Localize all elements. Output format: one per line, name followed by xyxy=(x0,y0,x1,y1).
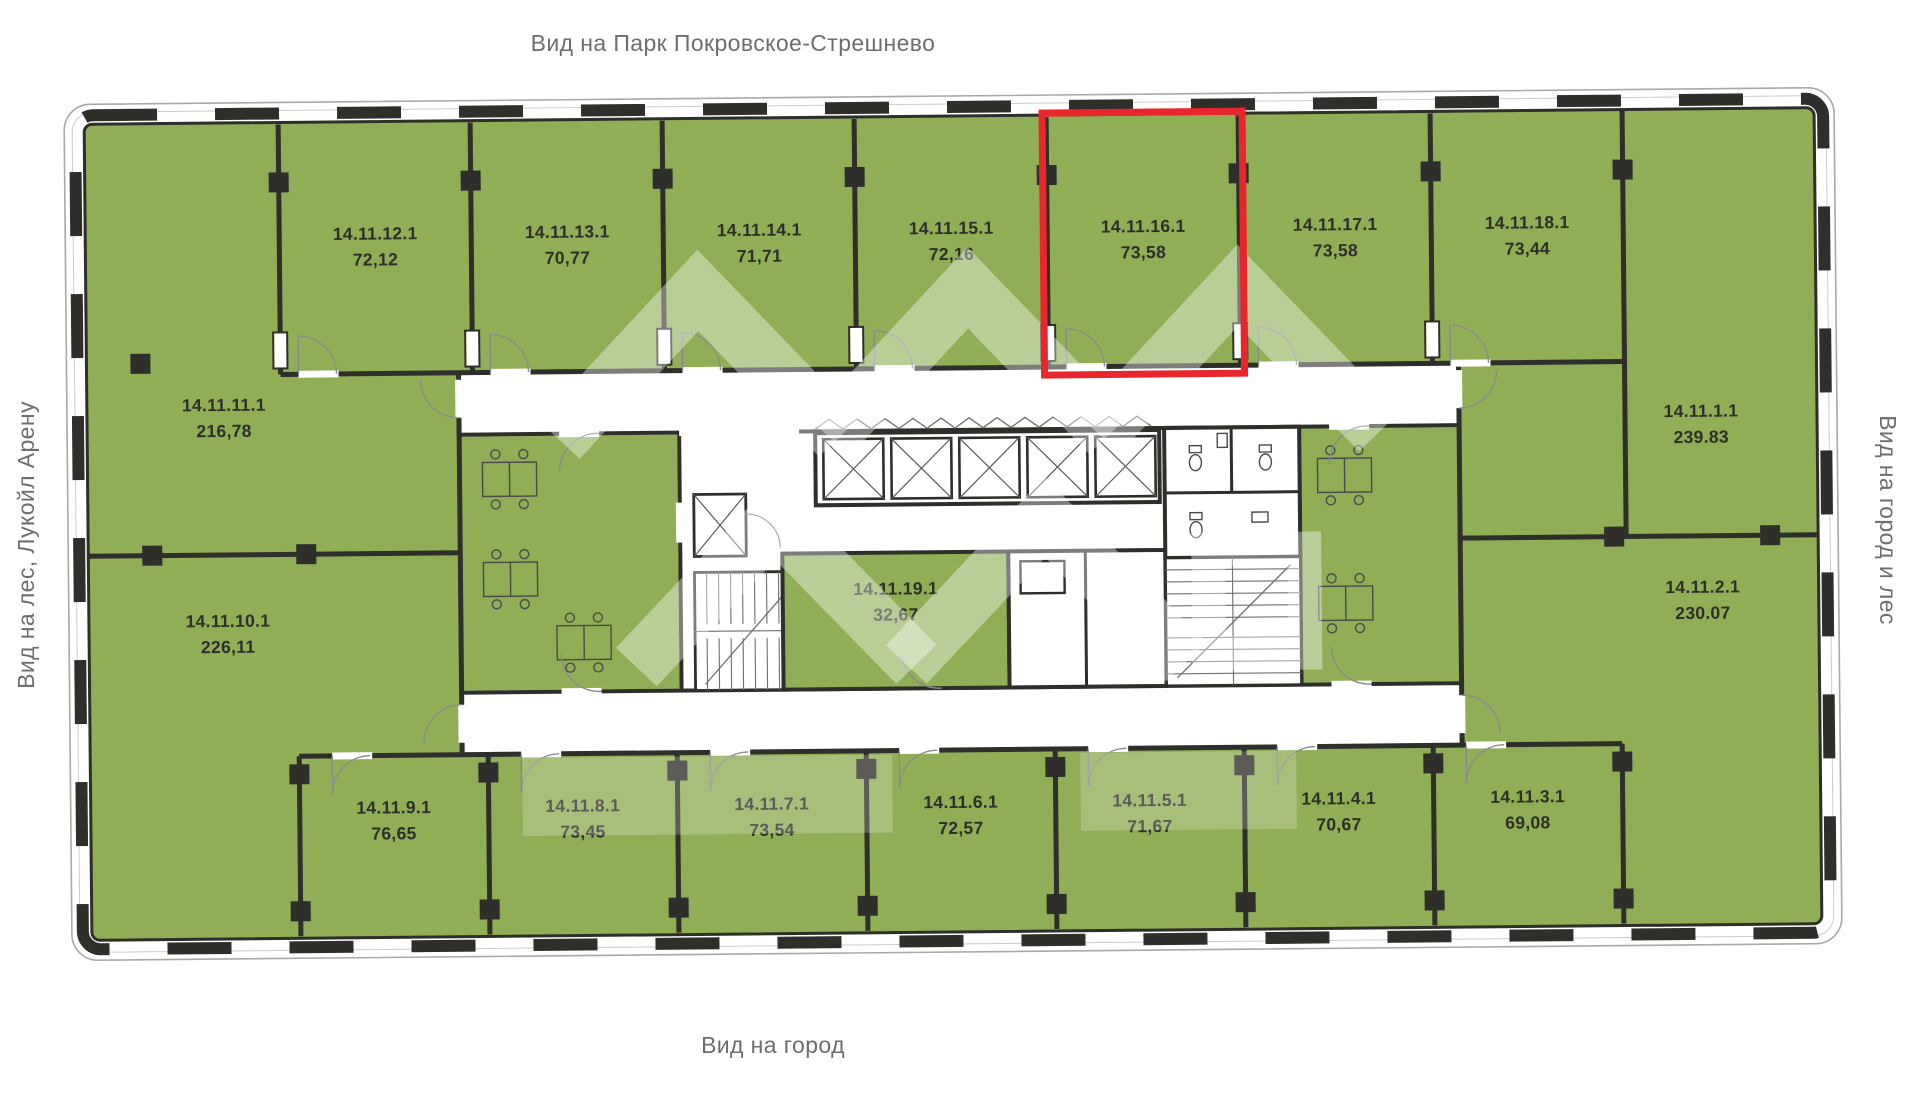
unit-id-label: 14.11.10.1 xyxy=(185,611,270,632)
unit-id-label: 14.11.7.1 xyxy=(734,793,809,814)
view-caption-bottom: Вид на город xyxy=(701,1032,845,1058)
unit-area-label: 230.07 xyxy=(1675,603,1731,624)
unit-area-label: 226,11 xyxy=(201,637,256,658)
unit-area-label: 76,65 xyxy=(371,823,416,843)
view-caption-right: Вид на город и лес xyxy=(1875,415,1901,625)
unit-id-label: 14.11.17.1 xyxy=(1293,214,1378,235)
unit-hit-area[interactable] xyxy=(1241,115,1429,362)
unit-area-label: 73,58 xyxy=(1313,240,1358,260)
unit-hit-area[interactable] xyxy=(1049,117,1237,364)
unit-hit-area[interactable] xyxy=(86,124,280,554)
unit-area-label: 216,78 xyxy=(196,421,252,442)
unit-hit-area[interactable] xyxy=(302,758,487,934)
unit-area-label: 73,44 xyxy=(1505,238,1550,258)
unit-hit-area[interactable] xyxy=(857,119,1045,366)
view-caption-top: Вид на Парк Покровское-Стрешнево xyxy=(531,30,936,56)
unit-14-11-19-1[interactable]: 14.11.19.1 32,67 xyxy=(784,553,1007,687)
unit-area-label: 72,57 xyxy=(938,818,983,838)
unit-14-11-8-1[interactable]: 14.11.8.1 73,45 xyxy=(491,756,676,932)
unit-id-label: 14.11.14.1 xyxy=(717,219,802,240)
unit-14-11-4-1[interactable]: 14.11.4.1 70,67 xyxy=(1247,748,1432,924)
wc-block xyxy=(1164,427,1300,558)
unit-id-label: 14.11.8.1 xyxy=(545,795,620,816)
unit-14-11-14-1[interactable]: 14.11.14.1 71,71 xyxy=(665,121,853,368)
unit-area-label: 70,77 xyxy=(545,247,590,267)
unit-id-label: 14.11.5.1 xyxy=(1112,790,1187,811)
unit-id-label: 14.11.16.1 xyxy=(1101,216,1186,237)
unit-id-label: 14.11.3.1 xyxy=(1490,786,1565,807)
unit-area-label: 239.83 xyxy=(1673,427,1729,448)
unit-area-label: 73,45 xyxy=(560,821,605,841)
unit-hit-area[interactable] xyxy=(1625,110,1817,534)
unit-14-11-3-1[interactable]: 14.11.3.1 69,08 xyxy=(1436,747,1621,923)
unit-14-11-7-1[interactable]: 14.11.7.1 73,54 xyxy=(680,754,865,930)
unit-id-label: 14.11.15.1 xyxy=(909,218,994,239)
unit-id-label: 14.11.18.1 xyxy=(1485,212,1570,233)
unit-hit-area[interactable] xyxy=(491,756,676,932)
unit-area-label: 70,67 xyxy=(1316,814,1361,834)
unit-14-11-18-1[interactable]: 14.11.18.1 73,44 xyxy=(1433,114,1621,361)
unit-14-11-5-1[interactable]: 14.11.5.1 71,67 xyxy=(1058,750,1243,926)
unit-id-label: 14.11.2.1 xyxy=(1665,576,1740,597)
unit-area-label: 73,58 xyxy=(1121,242,1166,262)
unit-14-11-10-1[interactable]: 14.11.10.1 226,11 xyxy=(90,557,284,937)
floorplan-page: Вид на Парк Покровское-Стрешнево Вид на … xyxy=(0,0,1920,1101)
unit-hit-area[interactable] xyxy=(665,121,853,368)
unit-area-label: 72,12 xyxy=(353,249,398,269)
unit-area-label: 32,67 xyxy=(873,604,918,624)
unit-id-label: 14.11.11.1 xyxy=(182,395,266,416)
stairwell-right xyxy=(1165,557,1301,686)
unit-hit-area[interactable] xyxy=(1247,748,1432,924)
unit-id-label: 14.11.4.1 xyxy=(1301,788,1376,809)
unit-14-11-9-1[interactable]: 14.11.9.1 76,65 xyxy=(302,758,487,934)
unit-area-label: 72,16 xyxy=(929,244,974,264)
service-elevator xyxy=(694,494,747,556)
unit-14-11-1-1[interactable]: 14.11.1.1 239.83 xyxy=(1625,110,1817,534)
unit-hit-area[interactable] xyxy=(1058,750,1243,926)
view-caption-left: Вид на лес, Лукойл Арену xyxy=(13,401,39,689)
unit-id-label: 14.11.9.1 xyxy=(356,797,431,818)
unit-14-11-15-1[interactable]: 14.11.15.1 72,16 xyxy=(857,119,1045,366)
unit-hit-area[interactable] xyxy=(281,125,469,372)
unit-14-11-6-1[interactable]: 14.11.6.1 72,57 xyxy=(869,752,1054,928)
unit-14-11-2-1[interactable]: 14.11.2.1 230.07 xyxy=(1629,538,1821,923)
unit-hit-area[interactable] xyxy=(680,754,865,930)
unit-hit-area[interactable] xyxy=(1433,114,1621,361)
unit-id-label: 14.11.19.1 xyxy=(853,578,938,599)
unit-14-11-13-1[interactable]: 14.11.13.1 70,77 xyxy=(473,123,661,370)
unit-area-label: 71,67 xyxy=(1127,816,1172,836)
unit-hit-area[interactable] xyxy=(869,752,1054,928)
unit-id-label: 14.11.13.1 xyxy=(525,221,610,242)
unit-14-11-11-1[interactable]: 14.11.11.1 216,78 xyxy=(86,124,280,554)
unit-area-label: 69,08 xyxy=(1505,812,1550,832)
unit-id-label: 14.11.12.1 xyxy=(333,223,418,244)
service-rooms xyxy=(1008,550,1166,688)
unit-hit-area[interactable] xyxy=(473,123,661,370)
unit-hit-area[interactable] xyxy=(1436,747,1621,923)
unit-area-label: 71,71 xyxy=(737,246,782,266)
unit-area-label: 73,54 xyxy=(749,820,794,840)
unit-14-11-17-1[interactable]: 14.11.17.1 73,58 xyxy=(1241,115,1429,362)
unit-14-11-12-1[interactable]: 14.11.12.1 72,12 xyxy=(281,125,469,372)
office-open-space-right xyxy=(1301,427,1459,682)
unit-14-11-16-1-selected[interactable]: 14.11.16.1 73,58 xyxy=(1049,117,1237,364)
unit-id-label: 14.11.1.1 xyxy=(1664,400,1739,421)
unit-id-label: 14.11.6.1 xyxy=(923,792,998,813)
